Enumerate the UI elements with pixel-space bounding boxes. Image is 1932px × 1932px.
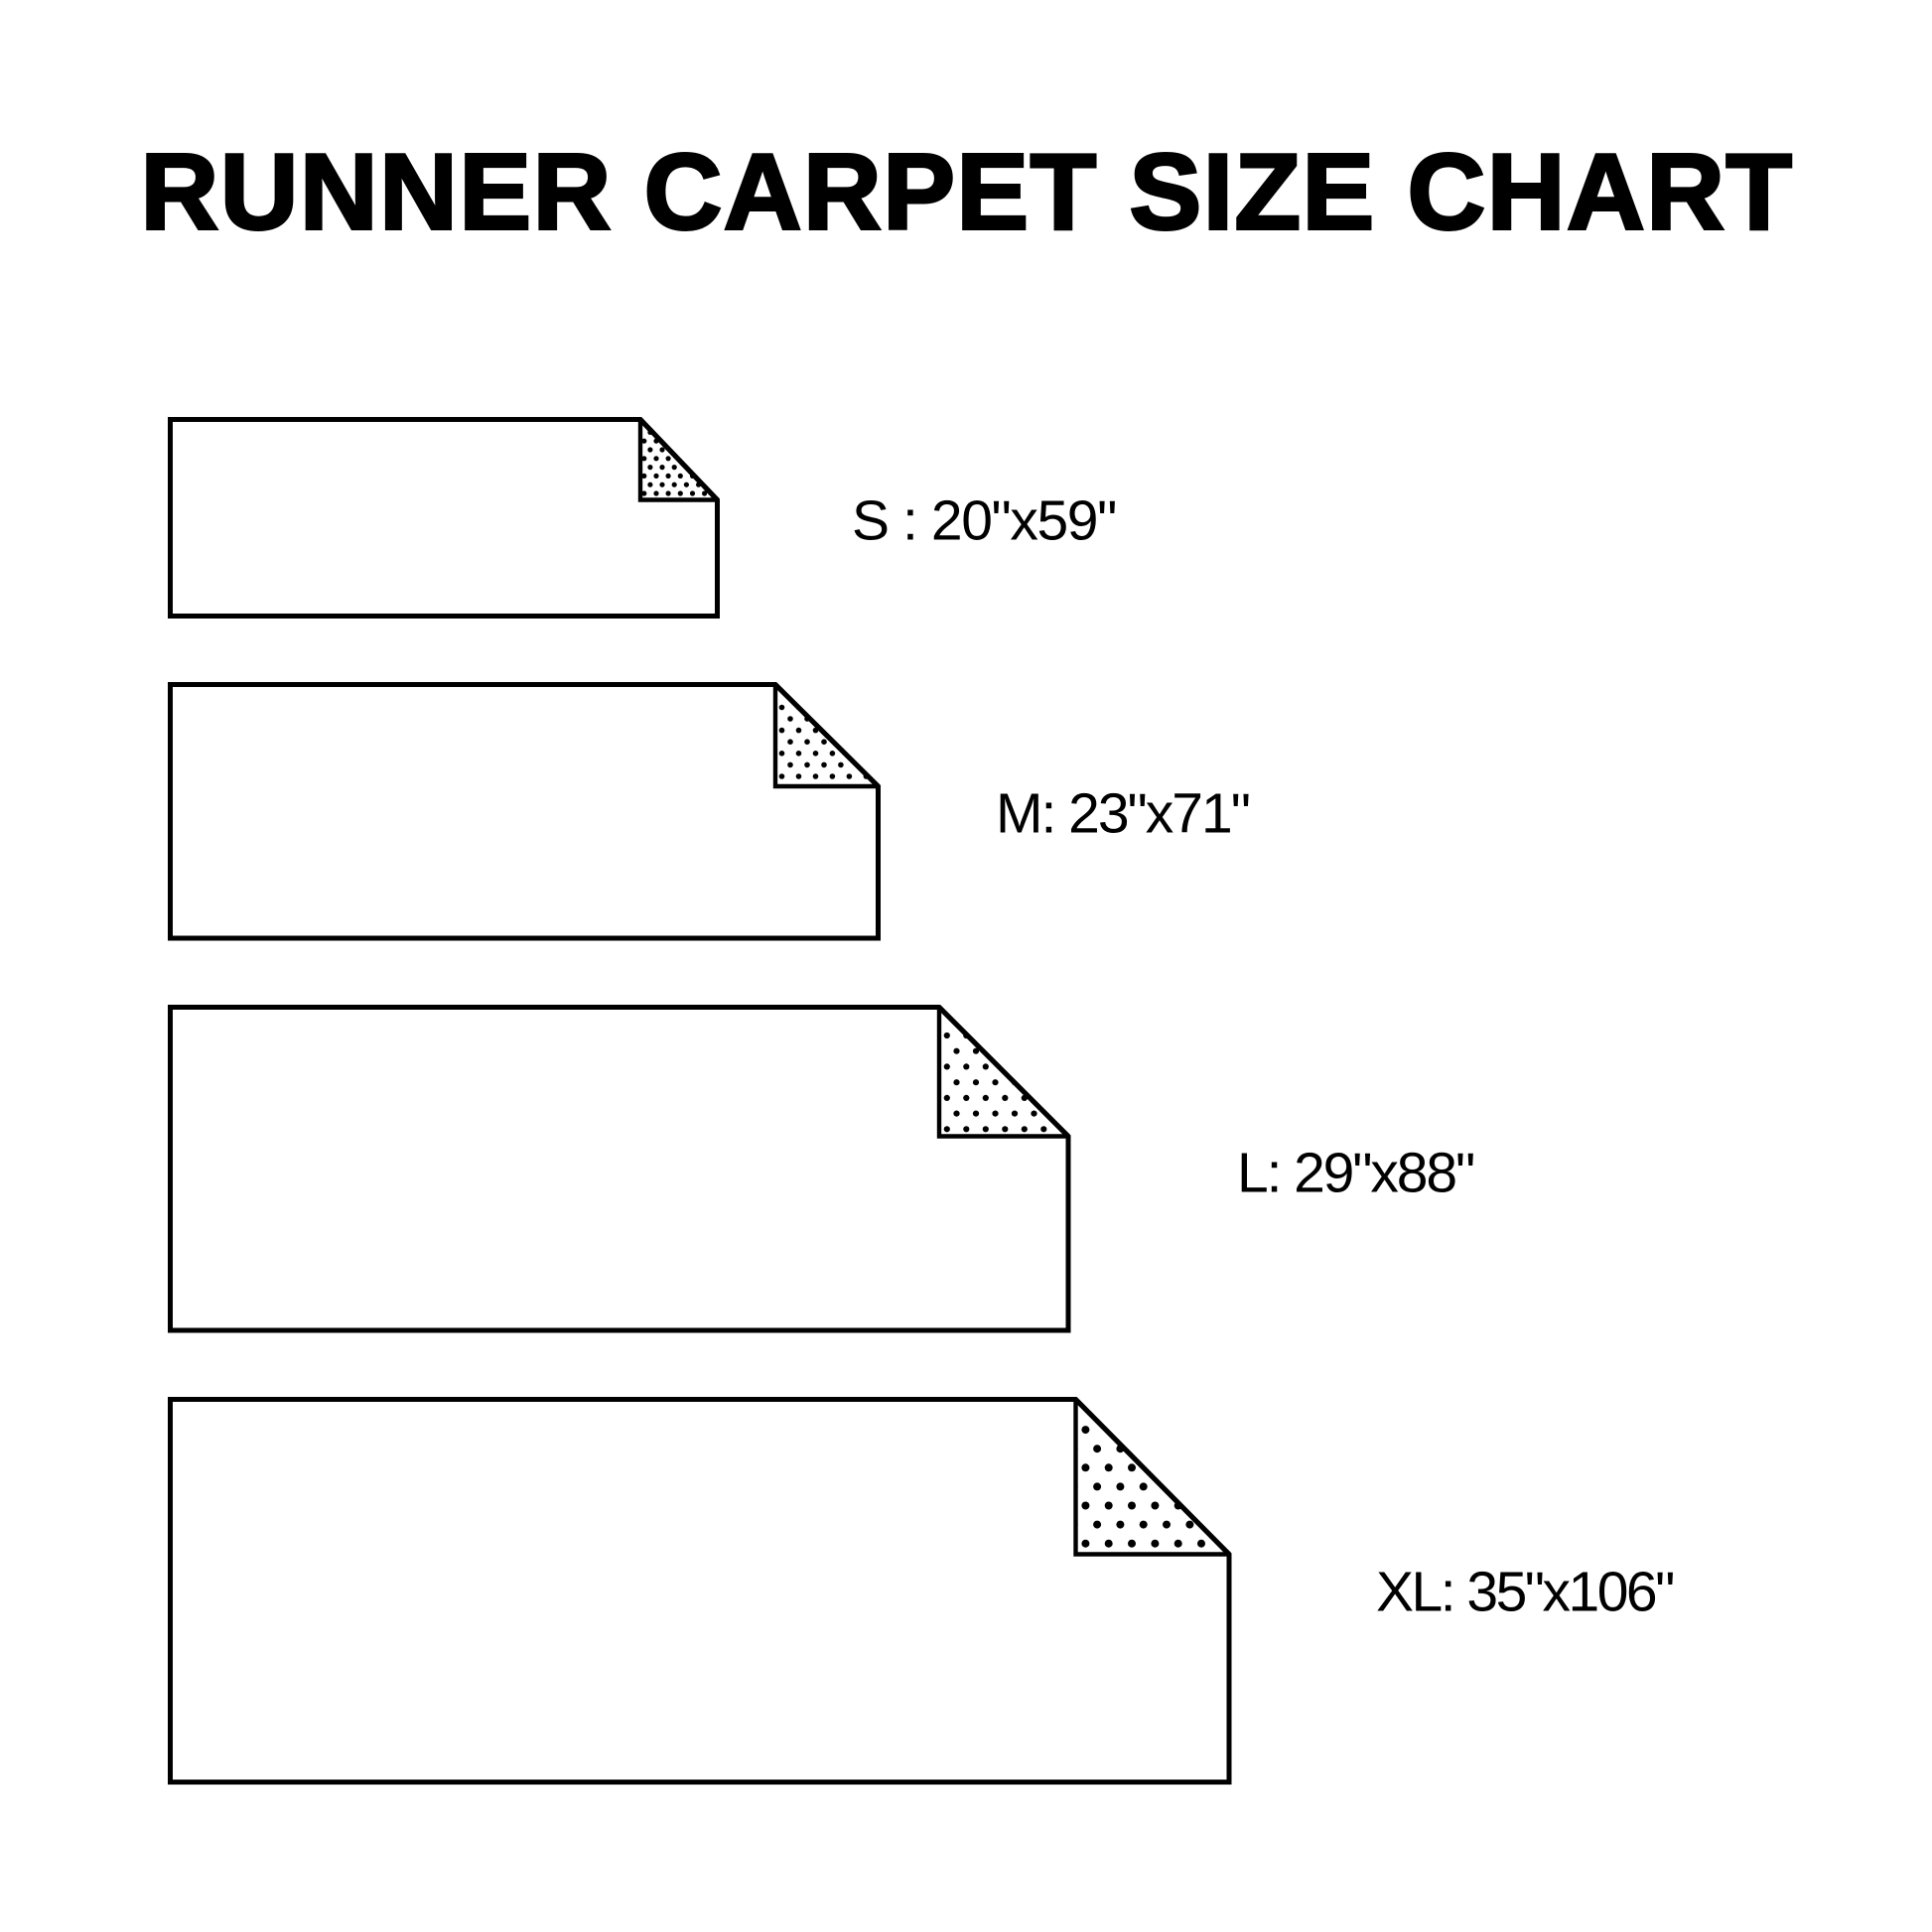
svg-text:RUNNER CARPET SIZE CHART: RUNNER CARPET SIZE CHART bbox=[141, 132, 1794, 253]
svg-text:L: 29"x88": L: 29"x88" bbox=[1237, 1142, 1473, 1205]
svg-text:M: 23"x71": M: 23"x71" bbox=[996, 782, 1249, 846]
svg-text:S : 20"x59": S : 20"x59" bbox=[852, 489, 1116, 553]
svg-text:XL: 35"x106": XL: 35"x106" bbox=[1376, 1561, 1673, 1624]
